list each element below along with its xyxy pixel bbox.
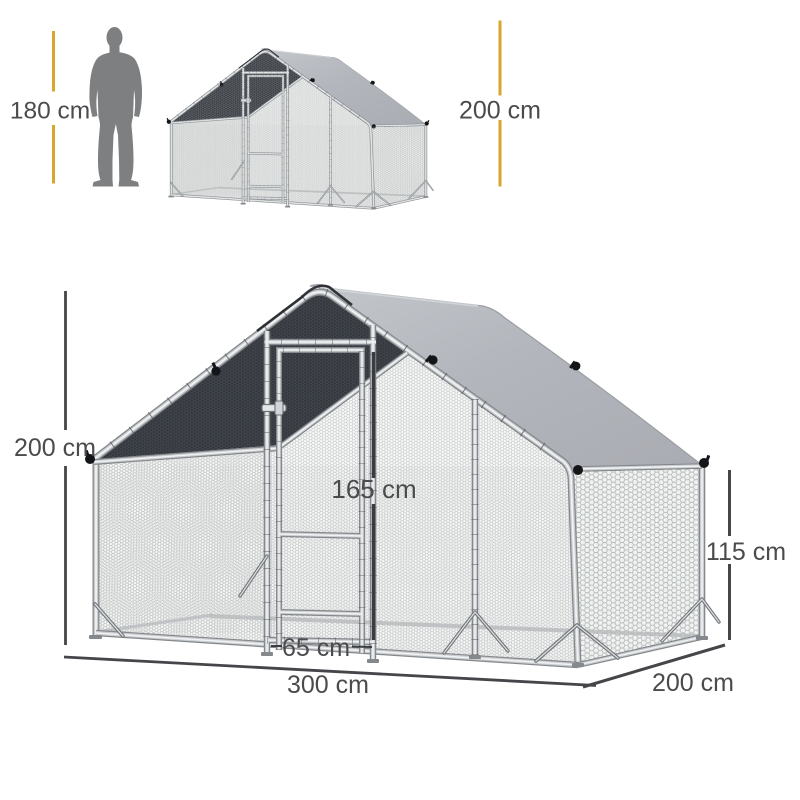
- svg-text:165 cm: 165 cm: [331, 474, 416, 504]
- svg-text:115 cm: 115 cm: [706, 538, 786, 566]
- svg-text:200 cm: 200 cm: [652, 669, 734, 697]
- svg-text:200 cm: 200 cm: [459, 97, 541, 125]
- svg-text:65 cm: 65 cm: [282, 634, 350, 662]
- svg-text:300 cm: 300 cm: [287, 671, 369, 699]
- svg-text:180 cm: 180 cm: [10, 98, 90, 125]
- svg-text:200 cm: 200 cm: [14, 434, 96, 462]
